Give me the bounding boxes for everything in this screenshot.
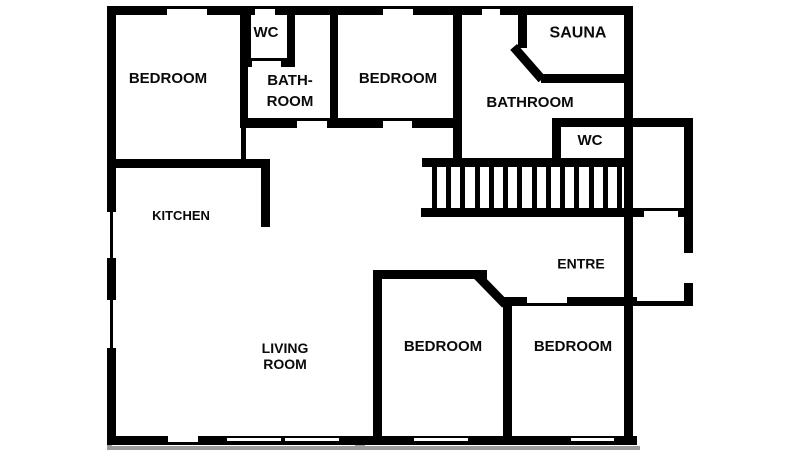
stair-tread	[603, 167, 608, 208]
wc-right-top-wall	[552, 118, 693, 127]
top-wall-seg	[500, 6, 633, 15]
shadow-line	[107, 446, 640, 450]
stair-tread	[432, 167, 437, 208]
room-label-kitchen: KITCHEN	[152, 208, 210, 224]
door-header	[383, 118, 412, 121]
door-opening	[168, 436, 198, 442]
kitchen-right-wall	[261, 159, 270, 227]
window-marker	[482, 6, 500, 9]
room-label-wc-right: WC	[578, 132, 603, 150]
room-label-line: WC	[578, 132, 603, 150]
bedrooms-divider-wall	[503, 297, 512, 440]
room-label-line: KITCHEN	[152, 208, 210, 224]
bedroom-middle-left-wall	[330, 15, 338, 121]
room-label-bathroom-small: BATH-ROOM	[267, 70, 314, 112]
stair-tread	[532, 167, 537, 208]
bathroom-small-left-thin	[241, 128, 246, 162]
room-label-bedroom-bottom-right: BEDROOM	[534, 338, 612, 356]
stair-tread	[446, 167, 451, 208]
top-wall-seg	[107, 6, 167, 15]
window-marker	[255, 6, 275, 9]
kitchen-top-wall	[107, 159, 270, 168]
bedroom-bm-top-wall	[373, 270, 487, 279]
room-label-line: ENTRE	[557, 256, 604, 273]
stair-tread	[460, 167, 465, 208]
stair-tread	[546, 167, 551, 208]
room-label-sauna: SAUNA	[550, 24, 607, 43]
room-label-line: ROOM	[262, 356, 309, 372]
stair-tread	[503, 167, 508, 208]
window-marker	[167, 6, 207, 9]
window-slit	[285, 438, 339, 441]
stair-tread	[517, 167, 522, 208]
entre-bottom-wall-seg	[567, 297, 637, 306]
room-label-line: BATH-	[267, 70, 314, 91]
window-slit	[414, 438, 468, 441]
stair-tread	[589, 167, 594, 208]
top-wall-seg	[275, 6, 383, 15]
stair-tread	[560, 167, 565, 208]
room-label-line: LIVING	[262, 340, 309, 356]
right-main-wall	[624, 6, 633, 445]
stairs-bottom-rail-seg	[678, 208, 693, 217]
left-wall-seg	[107, 348, 116, 440]
window-slit	[227, 438, 281, 441]
sauna-chamfer-wall	[510, 44, 545, 82]
stair-tread	[617, 167, 622, 208]
door-header	[297, 118, 327, 121]
hall-top-wall-seg	[240, 118, 297, 128]
door-header	[527, 303, 567, 306]
room-label-line: WC	[254, 24, 279, 42]
bedroom-middle-right-wall	[453, 15, 462, 162]
room-label-bedroom-top-middle: BEDROOM	[359, 70, 437, 88]
room-label-bathroom-main: BATHROOM	[486, 94, 573, 112]
left-wall-seg	[107, 258, 116, 300]
door-header	[252, 58, 281, 61]
room-label-wc-top: WC	[254, 24, 279, 42]
right-outer-wall-seg	[684, 283, 693, 306]
floor-plan: BEDROOMWCBATH-ROOMBEDROOMSAUNABATHROOMWC…	[0, 0, 800, 450]
window-marker	[110, 212, 113, 258]
sauna-left-wall	[518, 15, 527, 48]
room-label-entre: ENTRE	[557, 256, 604, 273]
stair-tread	[574, 167, 579, 208]
room-label-line: SAUNA	[550, 24, 607, 43]
stair-tread	[489, 167, 494, 208]
room-label-line: BEDROOM	[129, 70, 207, 88]
top-wall-seg	[413, 6, 482, 15]
room-label-line: BEDROOM	[534, 338, 612, 356]
top-wall-seg	[207, 6, 255, 15]
stairs-top-rail	[422, 158, 633, 167]
door-header	[644, 208, 678, 211]
shadow-stub	[355, 445, 365, 450]
bathroom-small-left-wall	[240, 15, 248, 128]
room-label-line: BEDROOM	[404, 338, 482, 356]
wc-top-bottom-wall-seg	[281, 58, 295, 67]
shadow-stub	[107, 445, 112, 450]
room-label-line: ROOM	[267, 91, 314, 112]
window-slit	[571, 438, 614, 441]
room-label-line: BATHROOM	[486, 94, 573, 112]
room-label-bedroom-bottom-middle: BEDROOM	[404, 338, 482, 356]
window-marker	[110, 300, 113, 348]
wc-right-left-wall	[552, 127, 561, 162]
right-outer-wall-seg	[684, 118, 693, 253]
stair-tread	[475, 167, 480, 208]
room-label-living-room: LIVINGROOM	[262, 340, 309, 372]
window-marker	[383, 6, 413, 9]
entre-bottom-wall-thin	[637, 301, 684, 306]
room-label-line: BEDROOM	[359, 70, 437, 88]
stairs-bottom-rail-seg	[421, 208, 644, 217]
room-label-bedroom-top-left: BEDROOM	[129, 70, 207, 88]
bedroom-bm-left-wall	[373, 270, 382, 440]
sauna-bottom-wall	[541, 74, 633, 83]
bedroom-chamfer-wall	[474, 272, 509, 308]
floor-plan-canvas: BEDROOMWCBATH-ROOMBEDROOMSAUNABATHROOMWC…	[0, 0, 800, 450]
left-wall-seg	[107, 6, 116, 212]
